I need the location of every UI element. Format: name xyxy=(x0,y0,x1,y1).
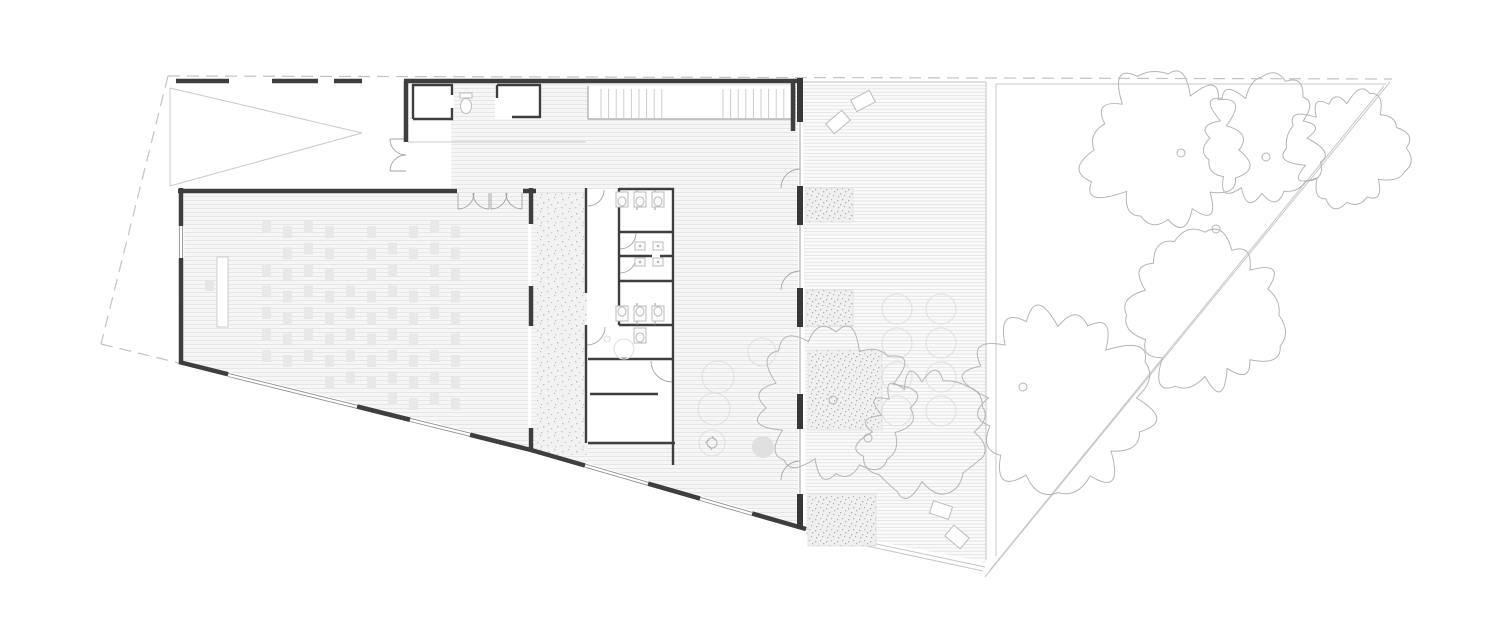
auditorium-seat xyxy=(283,269,292,281)
sink-drain xyxy=(639,245,642,248)
auditorium-seat xyxy=(346,329,355,341)
tree-canopy xyxy=(1079,71,1250,228)
auditorium-seat xyxy=(409,377,418,389)
auditorium-seat xyxy=(325,334,334,346)
auditorium-seat xyxy=(430,393,439,405)
auditorium-seat xyxy=(409,226,418,238)
auditorium-seat xyxy=(304,264,313,276)
auditorium-seat xyxy=(283,291,292,303)
auditorium-seat xyxy=(283,248,292,260)
auditorium-seat xyxy=(451,355,460,367)
tree-canopy xyxy=(1283,89,1411,209)
auditorium-seat xyxy=(451,269,460,281)
toilet-bowl xyxy=(618,197,626,206)
auditorium-seat xyxy=(388,286,397,298)
floor-plan-canvas xyxy=(0,0,1500,643)
auditorium-seat xyxy=(409,312,418,324)
auditorium-seat xyxy=(262,264,271,276)
wc-bowl xyxy=(461,99,472,114)
auditorium-seat xyxy=(325,355,334,367)
auditorium-seat xyxy=(430,221,439,233)
toilet-bowl xyxy=(636,197,644,206)
auditorium-seat xyxy=(262,350,271,362)
auditorium-seat xyxy=(367,312,376,324)
toilet-bowl xyxy=(636,307,644,316)
planter-bed xyxy=(806,290,853,326)
building-floors xyxy=(183,84,798,527)
tree-canopy xyxy=(1125,229,1286,392)
podium-stool xyxy=(205,281,214,291)
auditorium-seat xyxy=(388,307,397,319)
auditorium-seat xyxy=(451,377,460,389)
auditorium-seat xyxy=(325,226,334,238)
auditorium-seat xyxy=(451,312,460,324)
auditorium-seat xyxy=(409,291,418,303)
auditorium-seat xyxy=(304,243,313,255)
auditorium-seat xyxy=(283,226,292,238)
auditorium-seat xyxy=(409,398,418,410)
auditorium-seat xyxy=(367,355,376,367)
auditorium-seat xyxy=(388,372,397,384)
podium-desk xyxy=(217,257,228,327)
auditorium-seat xyxy=(262,307,271,319)
auditorium-seat xyxy=(283,355,292,367)
boundary-west xyxy=(101,76,168,344)
auditorium-seat xyxy=(388,350,397,362)
tree-trunk xyxy=(1262,153,1270,161)
auditorium-seat xyxy=(388,264,397,276)
auditorium-seat xyxy=(388,393,397,405)
auditorium-seat xyxy=(451,226,460,238)
auditorium-seat xyxy=(346,286,355,298)
auditorium-seat xyxy=(430,350,439,362)
wc-fixture-group xyxy=(460,93,472,114)
tree-canopy xyxy=(962,305,1157,495)
auditorium-seat xyxy=(325,312,334,324)
auditorium-seat xyxy=(388,329,397,341)
toilet-bowl xyxy=(654,197,662,206)
floor-plan-drawing xyxy=(0,0,1500,643)
courtyard-double-door xyxy=(390,139,406,171)
auditorium-seat xyxy=(451,334,460,346)
auditorium-seat xyxy=(283,334,292,346)
auditorium-seat xyxy=(451,248,460,260)
planter-bed xyxy=(806,188,853,222)
planter-bed xyxy=(808,494,876,546)
toilet-bowl xyxy=(636,333,644,342)
auditorium-seat xyxy=(388,243,397,255)
auditorium-seat xyxy=(304,286,313,298)
auditorium-seat xyxy=(367,248,376,260)
auditorium-seat xyxy=(346,372,355,384)
store-room-a xyxy=(411,84,454,120)
auditorium-seat xyxy=(430,307,439,319)
wc-cistern xyxy=(460,93,472,98)
auditorium-seat xyxy=(430,264,439,276)
auditorium-seat xyxy=(451,398,460,410)
auditorium-seat xyxy=(367,269,376,281)
auditorium-seat xyxy=(325,269,334,281)
auditorium-seat xyxy=(367,291,376,303)
filled-table xyxy=(752,436,774,458)
auditorium-seat xyxy=(304,350,313,362)
auditorium-seat xyxy=(346,307,355,319)
toilet-bowl xyxy=(618,307,626,316)
auditorium-seat xyxy=(367,226,376,238)
auditorium-seat xyxy=(409,355,418,367)
tree-trunk xyxy=(1019,383,1027,391)
auditorium-seat xyxy=(367,334,376,346)
store-room-b xyxy=(495,84,542,119)
garden-diagonal-border xyxy=(985,82,1390,577)
auditorium-seat xyxy=(304,307,313,319)
auditorium-seat xyxy=(430,372,439,384)
auditorium-seat xyxy=(430,286,439,298)
auditorium-seat xyxy=(325,291,334,303)
auditorium-seat xyxy=(325,377,334,389)
boundary-north xyxy=(168,76,1392,79)
stair-well xyxy=(588,86,795,119)
auditorium-seat xyxy=(262,221,271,233)
tree-trunk xyxy=(1177,149,1185,157)
auditorium-seat xyxy=(304,221,313,233)
auditorium-seat xyxy=(325,248,334,260)
courtyard-canopy-lines xyxy=(170,88,362,186)
sink-drain xyxy=(639,261,642,264)
auditorium-seat xyxy=(283,312,292,324)
terrazzo-corridor xyxy=(537,193,587,455)
auditorium-seat xyxy=(451,291,460,303)
auditorium-seat xyxy=(262,329,271,341)
auditorium-seat xyxy=(262,286,271,298)
boundary-southwest xyxy=(101,344,179,363)
auditorium-seat xyxy=(346,350,355,362)
auditorium-seat xyxy=(409,334,418,346)
toilet-bowl xyxy=(654,307,662,316)
auditorium-seat xyxy=(430,243,439,255)
auditorium-seat xyxy=(304,329,313,341)
auditorium-seat xyxy=(367,377,376,389)
auditorium-seat xyxy=(409,248,418,260)
sink-drain xyxy=(657,261,660,264)
sink-drain xyxy=(657,245,660,248)
